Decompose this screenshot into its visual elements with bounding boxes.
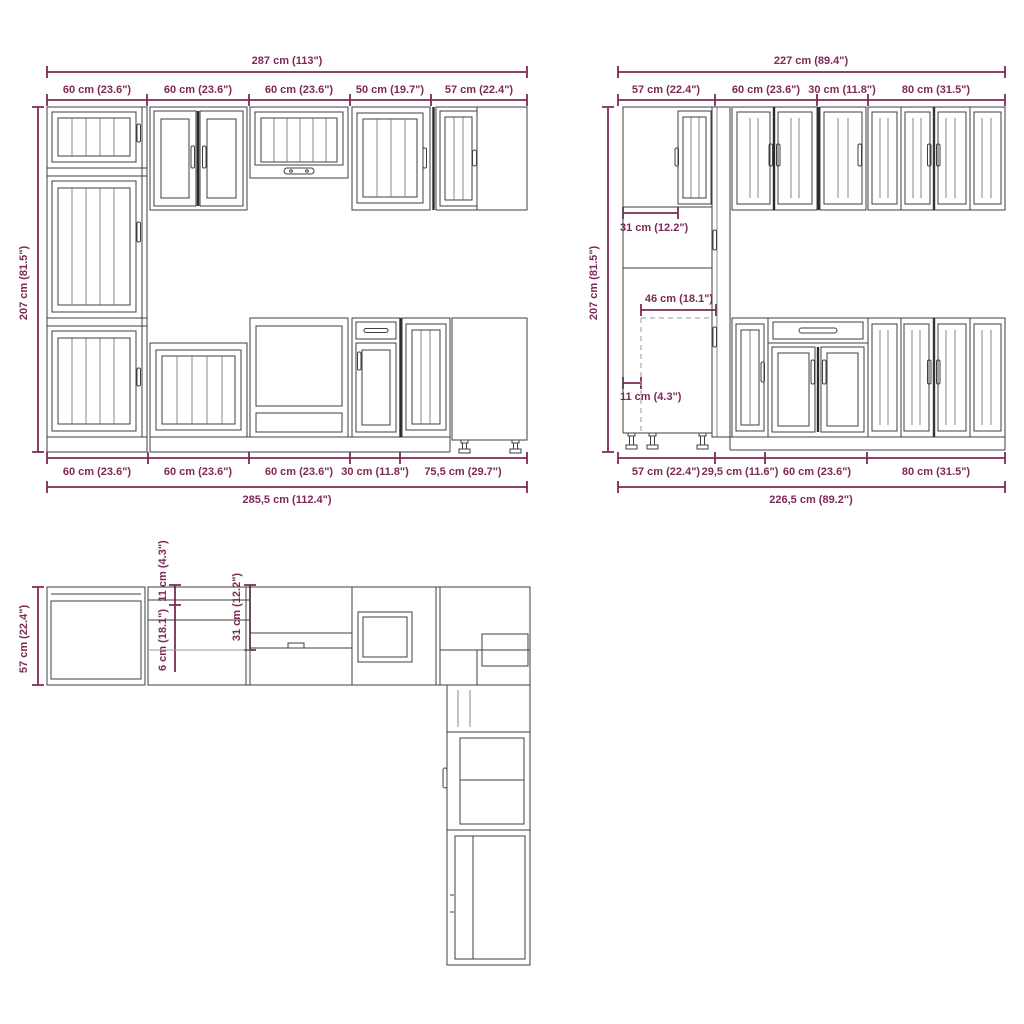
base-plinth-left-view [150,437,450,452]
dim-front-left-bot-seg-4: 30 cm (11.8") [341,466,409,478]
dim-front-right-bot-seg-3: 60 cm (23.6") [783,466,852,478]
dim-front-left-total-width-bottom: 285,5 cm (112.4") [243,494,332,506]
adjustable-feet [626,433,708,449]
dim-front-right-bot-seg-2: 29,5 cm (11.6") [702,466,779,478]
dim-front-left-top-seg-5: 57 cm (22.4") [445,84,514,96]
diagram-svg: 287 cm (113") 60 cm (23.6") 60 cm (23.6"… [0,0,1024,1024]
dim-front-right-top-seg-1: 57 cm (22.4") [632,84,701,96]
base-corner-cabinet [401,318,528,453]
kitchen-dimension-diagram: 287 cm (113") 60 cm (23.6") 60 cm (23.6"… [0,0,1024,1024]
front-right-dimension-lines [602,66,1005,493]
dim-front-right-top-seg-2: 60 cm (23.6") [732,84,801,96]
dim-front-left-top-seg-2: 60 cm (23.6") [164,84,233,96]
sink-base-cabinet-60 [768,318,868,437]
dim-front-left-bot-seg-3: 60 cm (23.6") [265,466,334,478]
front-view-right: 227 cm (89.4") 57 cm (22.4") 60 cm (23.6… [588,55,1005,506]
drawer-base-cabinet-30 [352,318,400,437]
tall-pantry-cabinet [47,107,147,452]
front-left-dimension-lines [32,66,527,493]
dim-front-right-total-width-bottom: 226,5 cm (89.2") [769,494,853,506]
dim-front-left-total-width: 287 cm (113") [252,55,323,67]
dim-front-right-height: 207 cm (81.5") [588,246,600,321]
wall-corner-cabinet [434,107,528,210]
plan-drawer-cabinet [250,587,352,685]
base-cabinet-30-right [732,318,768,437]
dim-front-right-bot-seg-1: 57 cm (22.4") [632,466,701,478]
dim-front-right-top-seg-4: 80 cm (31.5") [902,84,971,96]
dim-front-right-door-width: 31 cm (12.2") [620,222,689,234]
dim-front-right-bot-seg-4: 80 cm (31.5") [902,466,971,478]
wall-cabinet-30-single-door [819,107,867,210]
dim-front-left-bot-seg-2: 60 cm (23.6") [164,466,233,478]
plan-view: 57 cm (22.4") 11 cm (4.3") 6 cm (18.1") … [18,540,530,965]
front-view-left: 287 cm (113") 60 cm (23.6") 60 cm (23.6"… [18,55,527,506]
dim-front-left-top-seg-1: 60 cm (23.6") [63,84,132,96]
dim-front-left-bot-seg-5: 75,5 cm (29.7") [424,466,502,478]
dim-plan-depth: 57 cm (22.4") [18,605,30,674]
base-cabinet-40-pair-a [868,318,934,437]
wall-cabinet-40-pair-a [868,107,934,210]
base-cabinet-60 [150,343,247,437]
dim-plan-upper: 11 cm (4.3") [157,540,169,602]
adjustable-feet [459,440,521,453]
dim-front-left-bot-seg-1: 60 cm (23.6") [63,466,132,478]
plan-corner-cabinet [47,587,145,685]
dim-front-right-total-width: 227 cm (89.4") [774,55,849,67]
base-cabinet-40-pair-b [934,318,1005,437]
oven-housing-cabinet [247,318,348,437]
wall-cabinet-40-pair-b [934,107,1005,210]
dim-front-right-side-depth: 11 cm (4.3") [620,391,682,403]
wall-cabinet-flap [250,107,348,178]
dim-front-right-top-seg-3: 30 cm (11.8") [808,84,876,96]
dim-front-left-top-seg-3: 60 cm (23.6") [265,84,334,96]
dim-plan-lower: 6 cm (18.1") [157,609,169,671]
plan-return-run [443,685,530,965]
plan-cabinet-with-box [352,587,440,685]
dim-front-right-niche-width: 46 cm (18.1") [645,293,714,305]
dim-front-left-top-seg-4: 50 cm (19.7") [356,84,425,96]
dim-plan-right: 31 cm (12.2") [231,573,243,642]
wall-cabinet-60-two-door [732,107,817,210]
tall-cabinet-side-panel [712,107,730,437]
base-plinth-right-view [730,437,1005,450]
dim-front-left-height: 207 cm (81.5") [18,246,30,321]
wall-cabinet-50 [352,107,430,210]
wall-cabinet-two-door [150,107,247,210]
plan-corner-junction [440,587,530,685]
